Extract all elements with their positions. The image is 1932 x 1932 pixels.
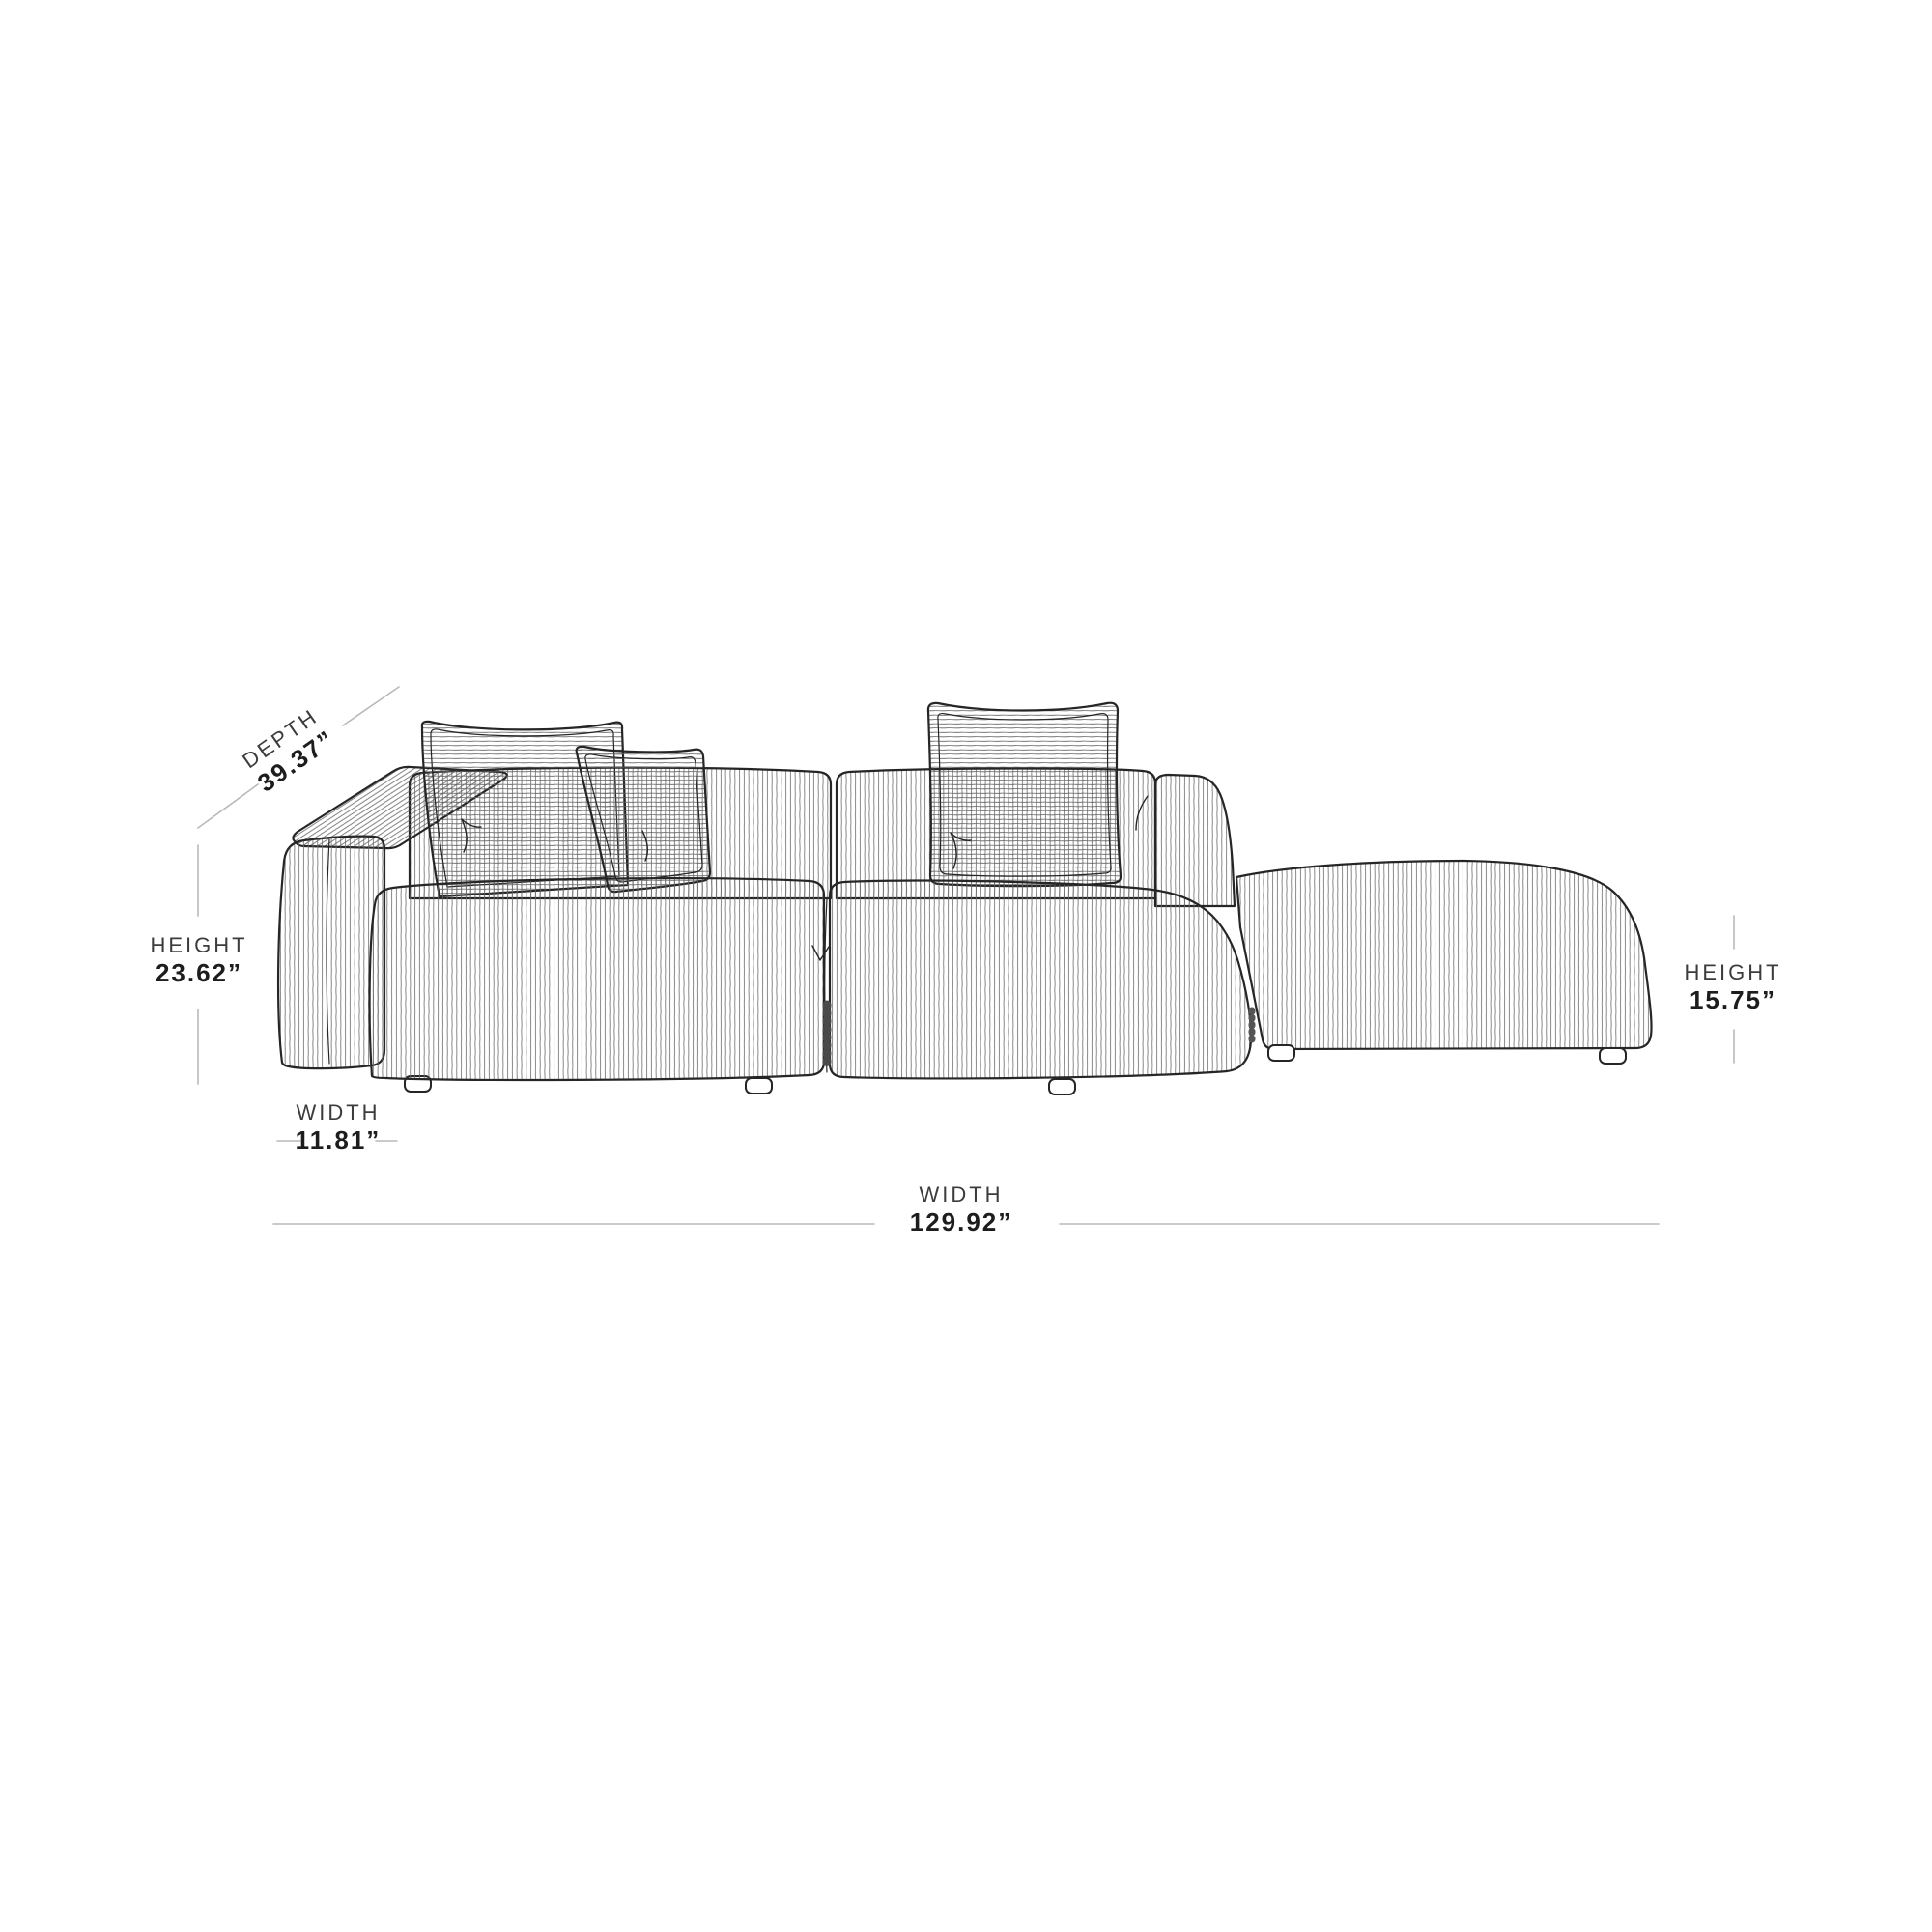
- ottoman: [1236, 861, 1652, 1049]
- right-side-panel: [1155, 775, 1235, 906]
- depth-line-lower: [198, 784, 258, 828]
- ottoman-height-value: 15.75”: [1684, 985, 1781, 1015]
- ottoman-height-annotation: HEIGHT 15.75”: [1684, 959, 1781, 1015]
- right-pillow: [928, 703, 1121, 886]
- dimension-diagram: DEPTH 39.37” HEIGHT 23.62” WIDTH 11.81” …: [0, 0, 1932, 1932]
- total-width-annotation: WIDTH 129.92”: [910, 1181, 1013, 1237]
- sofa-line-drawing: [0, 0, 1932, 1932]
- depth-line-upper: [343, 687, 399, 725]
- total-width-label: WIDTH: [910, 1181, 1013, 1207]
- left-arm-front: [278, 837, 384, 1068]
- back-height-annotation: HEIGHT 23.62”: [150, 932, 247, 988]
- back-height-label: HEIGHT: [150, 932, 247, 958]
- arm-width-value: 11.81”: [296, 1125, 382, 1155]
- arm-width-label: WIDTH: [296, 1099, 382, 1125]
- left-seat-cushion: [370, 878, 824, 1080]
- right-seat-cushion: [830, 881, 1251, 1079]
- arm-width-annotation: WIDTH 11.81”: [296, 1099, 382, 1155]
- ottoman-height-label: HEIGHT: [1684, 959, 1781, 985]
- total-width-value: 129.92”: [910, 1207, 1013, 1237]
- back-height-value: 23.62”: [150, 958, 247, 988]
